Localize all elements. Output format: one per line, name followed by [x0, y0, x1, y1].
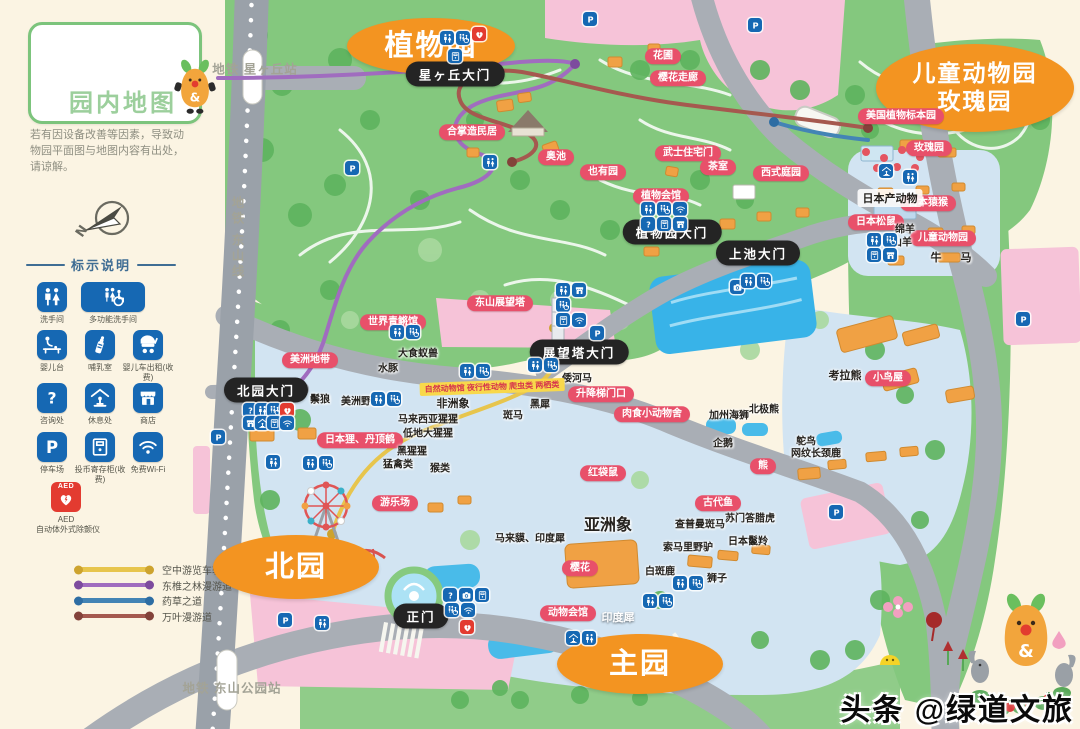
- poi-pill: 樱花走廊: [650, 70, 706, 86]
- toilet-icon: [867, 233, 881, 247]
- animal-label: 水豚: [378, 360, 398, 375]
- parking-icon: [345, 161, 359, 175]
- coin-locker-icon: [448, 49, 462, 63]
- poi-pill: 红袋鼠: [580, 465, 626, 481]
- poi-pill: 樱花: [562, 560, 598, 576]
- shop-icon: [673, 217, 687, 231]
- toilet-icon: [528, 358, 542, 372]
- wifi-icon: [461, 603, 475, 617]
- coin-locker-icon: [657, 217, 671, 231]
- animal-label: 印度犀: [602, 609, 635, 625]
- information-icon: [443, 588, 457, 602]
- wifi-icon: [572, 313, 586, 327]
- poi-pill: 美国植物标本园: [858, 108, 944, 124]
- aed-icon: [280, 403, 294, 417]
- gate-label: 北园大门: [224, 378, 308, 403]
- poi-pill: 花圃: [645, 48, 681, 64]
- poi-pill: 小鸟屋: [865, 370, 911, 386]
- svg-text:&: &: [1018, 641, 1034, 662]
- animal-label: 日本产动物: [858, 189, 923, 207]
- poi-pill: 西式庭园: [753, 165, 809, 181]
- animal-label: 马来貘、印度犀: [495, 530, 565, 545]
- area-badge: 北园: [213, 535, 379, 599]
- toilet-icon: [582, 631, 596, 645]
- wifi-icon: [280, 416, 294, 430]
- shop-icon: [883, 248, 897, 262]
- wifi-icon: [673, 202, 687, 216]
- gate-label: 正门: [393, 604, 448, 629]
- animal-label: 马来西亚猩猩: [398, 411, 458, 426]
- accessible-toilet-icon: [556, 298, 570, 312]
- toilet-icon: [440, 31, 454, 45]
- parking-icon: [211, 430, 225, 444]
- animal-label: 斑马: [503, 407, 523, 422]
- animal-label: 非洲象: [437, 395, 470, 411]
- poi-pill: 也有园: [580, 164, 626, 180]
- animal-label: 低地大猩猩: [403, 425, 453, 440]
- parking-icon: [278, 613, 292, 627]
- poi-pill: 茶室: [700, 159, 736, 175]
- parking-icon: [1016, 312, 1030, 326]
- shop-icon: [572, 283, 586, 297]
- animal-label: 鬃狼: [310, 391, 330, 406]
- accessible-toilet-icon: [757, 274, 771, 288]
- rest-area-icon: [566, 631, 580, 645]
- coin-locker-icon: [867, 248, 881, 262]
- toilet-icon: [673, 576, 687, 590]
- accessible-toilet-icon: [387, 392, 401, 406]
- parking-icon: [590, 326, 604, 340]
- accessible-toilet-icon: [319, 456, 333, 470]
- poi-pill: 玫瑰园: [906, 140, 952, 156]
- animal-label: 牛: [931, 249, 942, 265]
- poi-pill: 动物会馆: [540, 605, 596, 621]
- animal-label: 索马里野驴: [663, 539, 713, 554]
- toilet-icon: [556, 283, 570, 297]
- subway-station-label: 地铁 东山线: [228, 196, 247, 280]
- accessible-toilet-icon: [445, 603, 459, 617]
- poi-pill: 熊: [750, 458, 776, 474]
- animal-label: 日本鬣羚: [728, 533, 768, 548]
- toilet-icon: [741, 274, 755, 288]
- poi-pill: 游乐场: [372, 495, 418, 511]
- animal-label: 亚洲象: [584, 511, 632, 535]
- poi-pill: 奥池: [538, 149, 574, 165]
- photo-spot-icon: [459, 588, 473, 602]
- parking-icon: [748, 18, 762, 32]
- poi-pill: 美洲地带: [282, 352, 338, 368]
- coin-locker-icon: [267, 416, 281, 430]
- poi-pill: 肉食小动物舍: [614, 406, 690, 422]
- gate-label: 星ヶ丘大门: [406, 62, 505, 87]
- animal-label: 加州海狮: [709, 407, 749, 422]
- indoor-houses-ribbon: 自然动物馆 夜行性动物 爬虫类 两栖类: [419, 378, 564, 396]
- animal-label: 网纹长颈鹿: [791, 445, 841, 460]
- rest-area-icon: [879, 164, 893, 178]
- toilet-icon: [390, 325, 404, 339]
- animal-label: 马: [961, 249, 972, 265]
- aed-icon: [472, 27, 486, 41]
- poi-pill: 合掌造民居: [439, 124, 505, 140]
- toilet-icon: [371, 392, 385, 406]
- animal-label: 北极熊: [749, 401, 779, 416]
- poi-pill: 升降梯门口: [568, 386, 634, 402]
- animal-label: 大食蚁兽: [398, 345, 438, 360]
- toilet-icon: [641, 202, 655, 216]
- accessible-toilet-icon: [544, 358, 558, 372]
- poi-pill: 儿童动物园: [910, 230, 976, 246]
- gate-label: 植物园大门: [623, 220, 722, 245]
- animal-label: 苏门答腊虎: [725, 510, 775, 525]
- accessible-toilet-icon: [267, 403, 281, 417]
- animal-label: 查普曼斑马: [675, 516, 725, 531]
- accessible-toilet-icon: [657, 202, 671, 216]
- subway-station-label: 地铁 星ヶ丘站: [212, 59, 297, 78]
- toilet-icon: [643, 594, 657, 608]
- parking-icon: [583, 12, 597, 26]
- poi-pill: 古代鱼: [695, 495, 741, 511]
- animal-label: 猴类: [430, 460, 450, 475]
- information-icon: [641, 217, 655, 231]
- subway-station-label: 地铁 东山公园站: [183, 678, 282, 697]
- toilet-icon: [460, 364, 474, 378]
- accessible-toilet-icon: [406, 325, 420, 339]
- toilet-icon: [266, 455, 280, 469]
- animal-label: 白斑鹿: [645, 563, 675, 578]
- animal-label: 企鹅: [713, 435, 733, 450]
- accessible-toilet-icon: [659, 594, 673, 608]
- toilet-icon: [903, 170, 917, 184]
- animal-label: 倭河马: [562, 370, 592, 385]
- accessible-toilet-icon: [456, 31, 470, 45]
- coin-locker-icon: [556, 313, 570, 327]
- parking-icon: [829, 505, 843, 519]
- zoo-park-map-page: ? P 园内地图: [0, 0, 1080, 729]
- accessible-toilet-icon: [883, 233, 897, 247]
- poi-pill: 日本狸、丹顶鹤: [317, 432, 403, 448]
- poi-pill: 东山展望塔: [467, 295, 533, 311]
- watermark-text: 头条 @绿道文旅: [840, 685, 1074, 729]
- aed-icon: [460, 620, 474, 634]
- animal-label: 黑犀: [530, 396, 550, 411]
- toilet-icon: [303, 456, 317, 470]
- toilet-icon: [315, 616, 329, 630]
- coin-locker-icon: [475, 588, 489, 602]
- gate-label: 上池大门: [716, 241, 800, 266]
- accessible-toilet-icon: [476, 364, 490, 378]
- animal-label: 考拉熊: [829, 367, 862, 383]
- toilet-icon: [483, 155, 497, 169]
- animal-label: 猛禽类: [383, 456, 413, 471]
- accessible-toilet-icon: [689, 576, 703, 590]
- animal-label: 狮子: [707, 570, 727, 585]
